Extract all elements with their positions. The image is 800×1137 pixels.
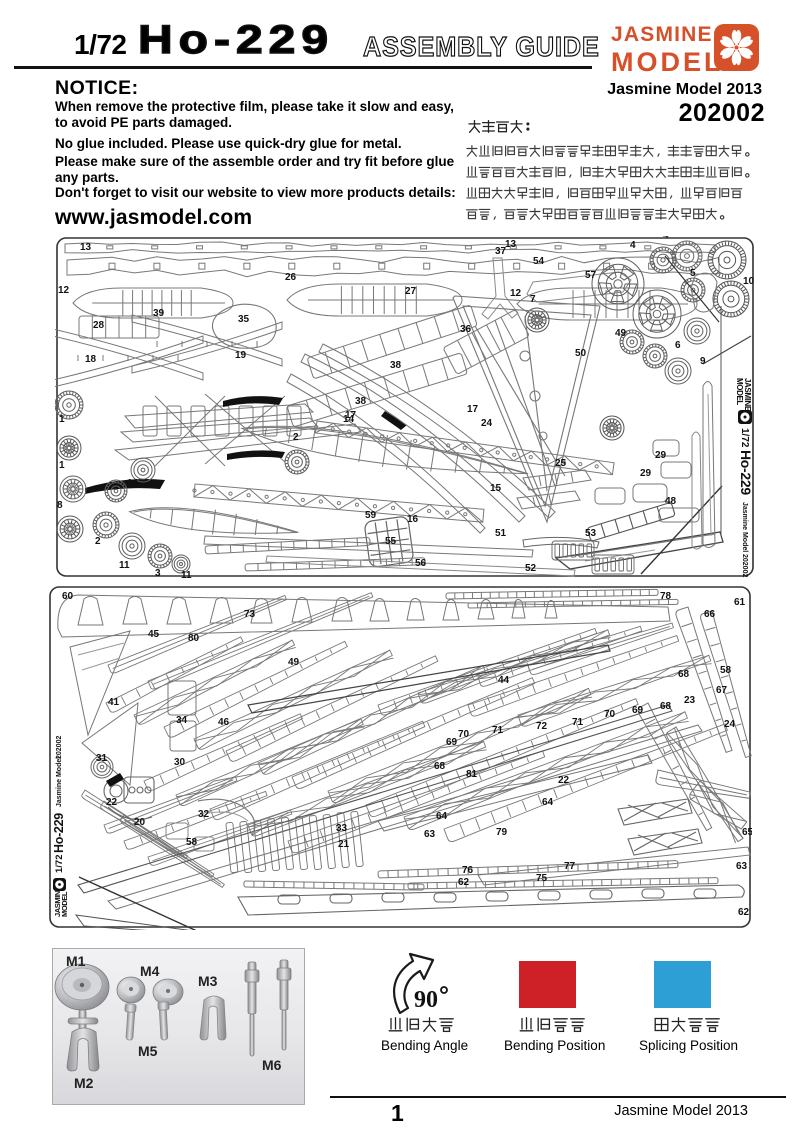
svg-text:24: 24 [724,719,736,730]
svg-text:71: 71 [492,725,504,736]
svg-text:14: 14 [343,414,355,425]
svg-text:54: 54 [533,256,545,267]
svg-text:M6: M6 [262,1057,282,1073]
svg-text:29: 29 [655,450,667,461]
svg-text:36: 36 [460,324,472,335]
svg-text:202002: 202002 [56,736,63,759]
svg-text:1/72: 1/72 [54,855,65,874]
svg-text:21: 21 [338,839,350,850]
svg-text:13: 13 [80,242,92,253]
svg-text:77: 77 [564,861,576,872]
svg-text:78: 78 [660,591,672,602]
svg-text:38: 38 [390,360,402,371]
svg-text:MODEL: MODEL [60,891,69,917]
svg-text:58: 58 [720,665,732,676]
svg-text:9: 9 [700,356,706,367]
svg-text:26: 26 [285,272,297,283]
svg-text:80: 80 [188,633,200,644]
svg-text:JASMINE: JASMINE [611,23,713,46]
svg-text:41: 41 [108,697,120,708]
svg-text:38: 38 [355,396,367,407]
svg-text:14: 14 [127,478,139,489]
svg-text:MODEL: MODEL [735,378,744,405]
svg-text:18: 18 [85,354,97,365]
svg-text:M2: M2 [74,1075,94,1091]
svg-text:45: 45 [148,629,160,640]
svg-text:72: 72 [536,721,548,732]
svg-text:Jasmine Model: Jasmine Model [56,757,63,807]
svg-text:Ho-229: Ho-229 [738,450,754,495]
svg-text:51: 51 [495,528,507,539]
svg-text:71: 71 [572,717,584,728]
svg-text:46: 46 [218,717,230,728]
svg-text:24: 24 [481,418,493,429]
svg-text:202002: 202002 [741,554,748,577]
svg-text:60: 60 [62,591,74,602]
svg-text:35: 35 [238,314,250,325]
svg-text:29: 29 [640,468,652,479]
svg-text:34: 34 [176,715,188,726]
svg-text:20: 20 [134,817,146,828]
svg-text:11: 11 [119,560,130,571]
svg-text:69: 69 [632,705,644,716]
svg-text:22: 22 [106,797,118,808]
svg-text:79: 79 [496,827,508,838]
svg-text:2: 2 [95,536,101,547]
svg-text:10: 10 [743,276,755,287]
svg-text:12: 12 [58,285,70,296]
svg-text:M3: M3 [198,973,218,989]
svg-text:55: 55 [385,536,397,547]
svg-text:13: 13 [505,239,517,250]
svg-text:12: 12 [510,288,522,299]
svg-text:3: 3 [155,568,161,579]
svg-text:22: 22 [558,775,570,786]
svg-text:30: 30 [174,757,186,768]
svg-text:64: 64 [436,811,448,822]
svg-text:4: 4 [630,240,636,251]
svg-text:53: 53 [585,528,597,539]
svg-text:44: 44 [498,675,510,686]
svg-text:68: 68 [678,669,690,680]
svg-text:39: 39 [153,308,165,319]
svg-text:Jasmine Model: Jasmine Model [741,502,748,552]
svg-text:33: 33 [336,823,348,834]
svg-text:11: 11 [181,570,192,579]
svg-text:75: 75 [536,873,548,884]
svg-text:70: 70 [604,709,616,720]
svg-text:68: 68 [434,761,446,772]
svg-text:25: 25 [555,458,567,469]
svg-text:28: 28 [93,320,105,331]
svg-text:31: 31 [96,753,108,764]
svg-text:49: 49 [615,328,627,339]
svg-text:23: 23 [684,695,696,706]
svg-text:1/72: 1/72 [739,428,750,448]
svg-text:68: 68 [660,701,672,712]
svg-text:17: 17 [467,404,479,415]
svg-text:73: 73 [244,609,256,620]
svg-text:2: 2 [293,432,299,443]
svg-text:M1: M1 [66,953,86,969]
svg-text:59: 59 [365,510,377,521]
svg-text:MODEL: MODEL [611,47,724,77]
svg-text:M4: M4 [140,963,160,979]
svg-text:64: 64 [542,797,554,808]
svg-text:70: 70 [458,729,470,740]
svg-text:49: 49 [288,657,300,668]
svg-text:57: 57 [585,270,597,281]
svg-text:19: 19 [235,350,247,361]
svg-text:67: 67 [716,685,728,696]
svg-text:1: 1 [59,414,65,425]
svg-text:6: 6 [675,340,681,351]
svg-text:58: 58 [186,837,198,848]
svg-text:52: 52 [525,563,537,574]
svg-text:62: 62 [738,907,750,918]
svg-text:37: 37 [495,246,507,257]
svg-text:63: 63 [424,829,436,840]
svg-text:61: 61 [734,597,746,608]
svg-text:27: 27 [405,286,417,297]
svg-text:32: 32 [198,809,210,820]
svg-text:8: 8 [57,500,63,511]
svg-text:63: 63 [736,861,748,872]
svg-text:81: 81 [466,769,478,780]
svg-text:1: 1 [59,460,65,471]
svg-text:48: 48 [665,496,677,507]
svg-text:5: 5 [690,268,696,279]
svg-text:16: 16 [407,514,419,525]
svg-text:66: 66 [704,609,716,620]
svg-text:76: 76 [462,865,474,876]
svg-text:15: 15 [490,483,502,494]
svg-text:7: 7 [530,294,536,305]
svg-text:62: 62 [458,877,470,888]
svg-text:4: 4 [663,236,669,241]
svg-text:65: 65 [742,827,752,838]
svg-text:50: 50 [575,348,587,359]
svg-text:Ho-229: Ho-229 [52,813,66,853]
svg-text:69: 69 [446,737,458,748]
svg-text:M5: M5 [138,1043,158,1059]
svg-text:90: 90 [414,987,438,1013]
svg-text:56: 56 [415,558,427,569]
